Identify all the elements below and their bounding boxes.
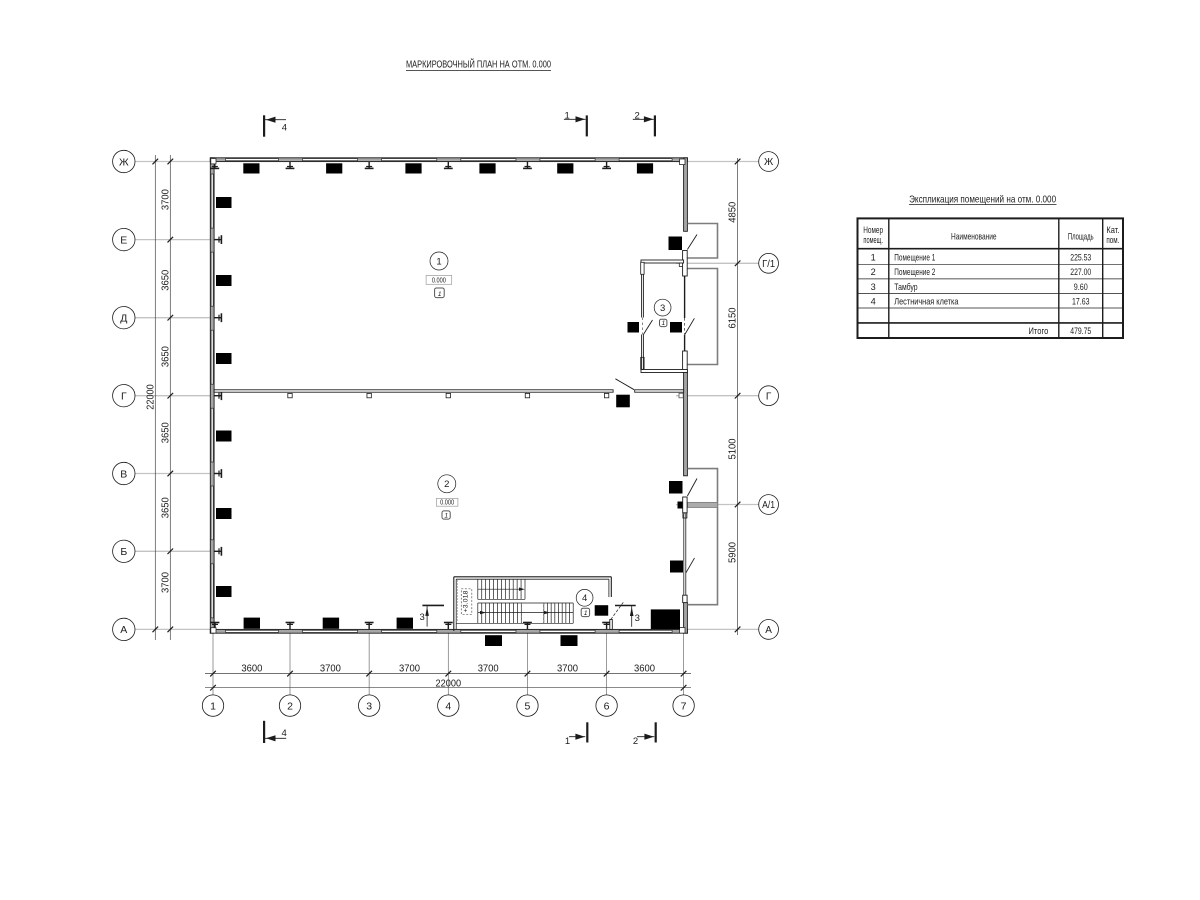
svg-text:Лестничная клетка: Лестничная клетка: [894, 296, 959, 306]
svg-text:5: 5: [525, 700, 531, 712]
svg-text:А/1: А/1: [762, 500, 775, 511]
svg-text:4850: 4850: [727, 201, 738, 222]
svg-text:3700: 3700: [161, 572, 172, 593]
svg-text:1: 1: [565, 736, 570, 747]
svg-text:3700: 3700: [161, 189, 172, 210]
svg-text:1: 1: [210, 700, 216, 712]
svg-text:7: 7: [681, 700, 687, 712]
svg-text:4: 4: [582, 593, 587, 604]
svg-text:225.53: 225.53: [1070, 253, 1091, 263]
svg-text:Помещение 1: Помещение 1: [894, 253, 935, 263]
svg-text:МАРКИРОВОЧНЫЙ ПЛАН НА ОТМ. 0.0: МАРКИРОВОЧНЫЙ ПЛАН НА ОТМ. 0.000: [406, 58, 551, 71]
svg-text:3600: 3600: [634, 664, 655, 675]
svg-text:Итого: Итого: [1029, 326, 1049, 336]
svg-text:Г: Г: [121, 391, 127, 403]
svg-text:17.63: 17.63: [1072, 296, 1090, 306]
svg-text:Помещение 2: Помещение 2: [894, 267, 935, 277]
svg-text:3: 3: [635, 613, 640, 624]
svg-text:3: 3: [366, 700, 372, 712]
svg-text:1: 1: [436, 256, 441, 267]
svg-text:3700: 3700: [320, 664, 341, 675]
svg-text:3600: 3600: [241, 664, 262, 675]
svg-text:22000: 22000: [436, 678, 462, 689]
svg-text:4: 4: [282, 122, 287, 133]
svg-text:Номер: Номер: [863, 225, 883, 235]
svg-text:Площадь: Площадь: [1068, 232, 1094, 242]
svg-text:1: 1: [584, 610, 588, 617]
svg-text:Б: Б: [120, 546, 127, 558]
svg-text:1: 1: [438, 291, 442, 298]
svg-text:Экспликация помещений на отм.: Экспликация помещений на отм. 0.000: [909, 193, 1056, 205]
svg-text:2: 2: [444, 479, 449, 490]
svg-text:6: 6: [604, 700, 610, 712]
svg-text:3: 3: [871, 282, 876, 292]
svg-text:пом.: пом.: [1106, 235, 1119, 245]
svg-text:2: 2: [633, 736, 638, 747]
svg-text:3650: 3650: [161, 497, 172, 518]
svg-text:1: 1: [444, 513, 448, 520]
svg-text:+3.018: +3.018: [463, 590, 470, 612]
svg-text:А: А: [765, 625, 772, 636]
svg-text:9.60: 9.60: [1074, 282, 1088, 292]
svg-text:479.75: 479.75: [1070, 326, 1091, 336]
svg-text:3: 3: [660, 303, 665, 314]
svg-text:помещ.: помещ.: [863, 235, 883, 245]
svg-text:3700: 3700: [557, 664, 578, 675]
svg-text:Д: Д: [120, 313, 127, 325]
svg-text:Г: Г: [766, 391, 772, 402]
svg-text:Тамбур: Тамбур: [894, 282, 917, 292]
svg-text:Е: Е: [120, 234, 127, 246]
svg-text:4: 4: [871, 296, 876, 306]
svg-text:Наименование: Наименование: [951, 232, 997, 242]
svg-text:4: 4: [281, 728, 286, 739]
svg-text:5900: 5900: [727, 542, 738, 563]
svg-text:Ж: Ж: [119, 156, 129, 168]
svg-text:3700: 3700: [478, 664, 499, 675]
svg-text:3650: 3650: [161, 346, 172, 367]
svg-text:3650: 3650: [161, 269, 172, 290]
svg-text:Ж: Ж: [764, 157, 774, 168]
svg-text:3650: 3650: [161, 422, 172, 443]
svg-text:3: 3: [420, 612, 425, 623]
svg-text:0.000: 0.000: [440, 497, 454, 506]
svg-text:4: 4: [445, 700, 451, 712]
svg-text:1: 1: [871, 253, 876, 263]
svg-text:0.000: 0.000: [432, 276, 446, 285]
svg-text:3700: 3700: [399, 664, 420, 675]
svg-text:Г/1: Г/1: [762, 259, 775, 270]
svg-text:5100: 5100: [727, 438, 738, 459]
svg-text:Кат.: Кат.: [1106, 225, 1119, 235]
svg-text:2: 2: [287, 700, 293, 712]
svg-text:В: В: [120, 468, 127, 480]
svg-text:А: А: [120, 624, 127, 636]
svg-text:2: 2: [871, 267, 876, 277]
svg-text:22000: 22000: [146, 384, 157, 410]
svg-text:227.00: 227.00: [1070, 267, 1091, 277]
svg-text:6150: 6150: [727, 307, 738, 328]
svg-text:1: 1: [662, 320, 666, 327]
